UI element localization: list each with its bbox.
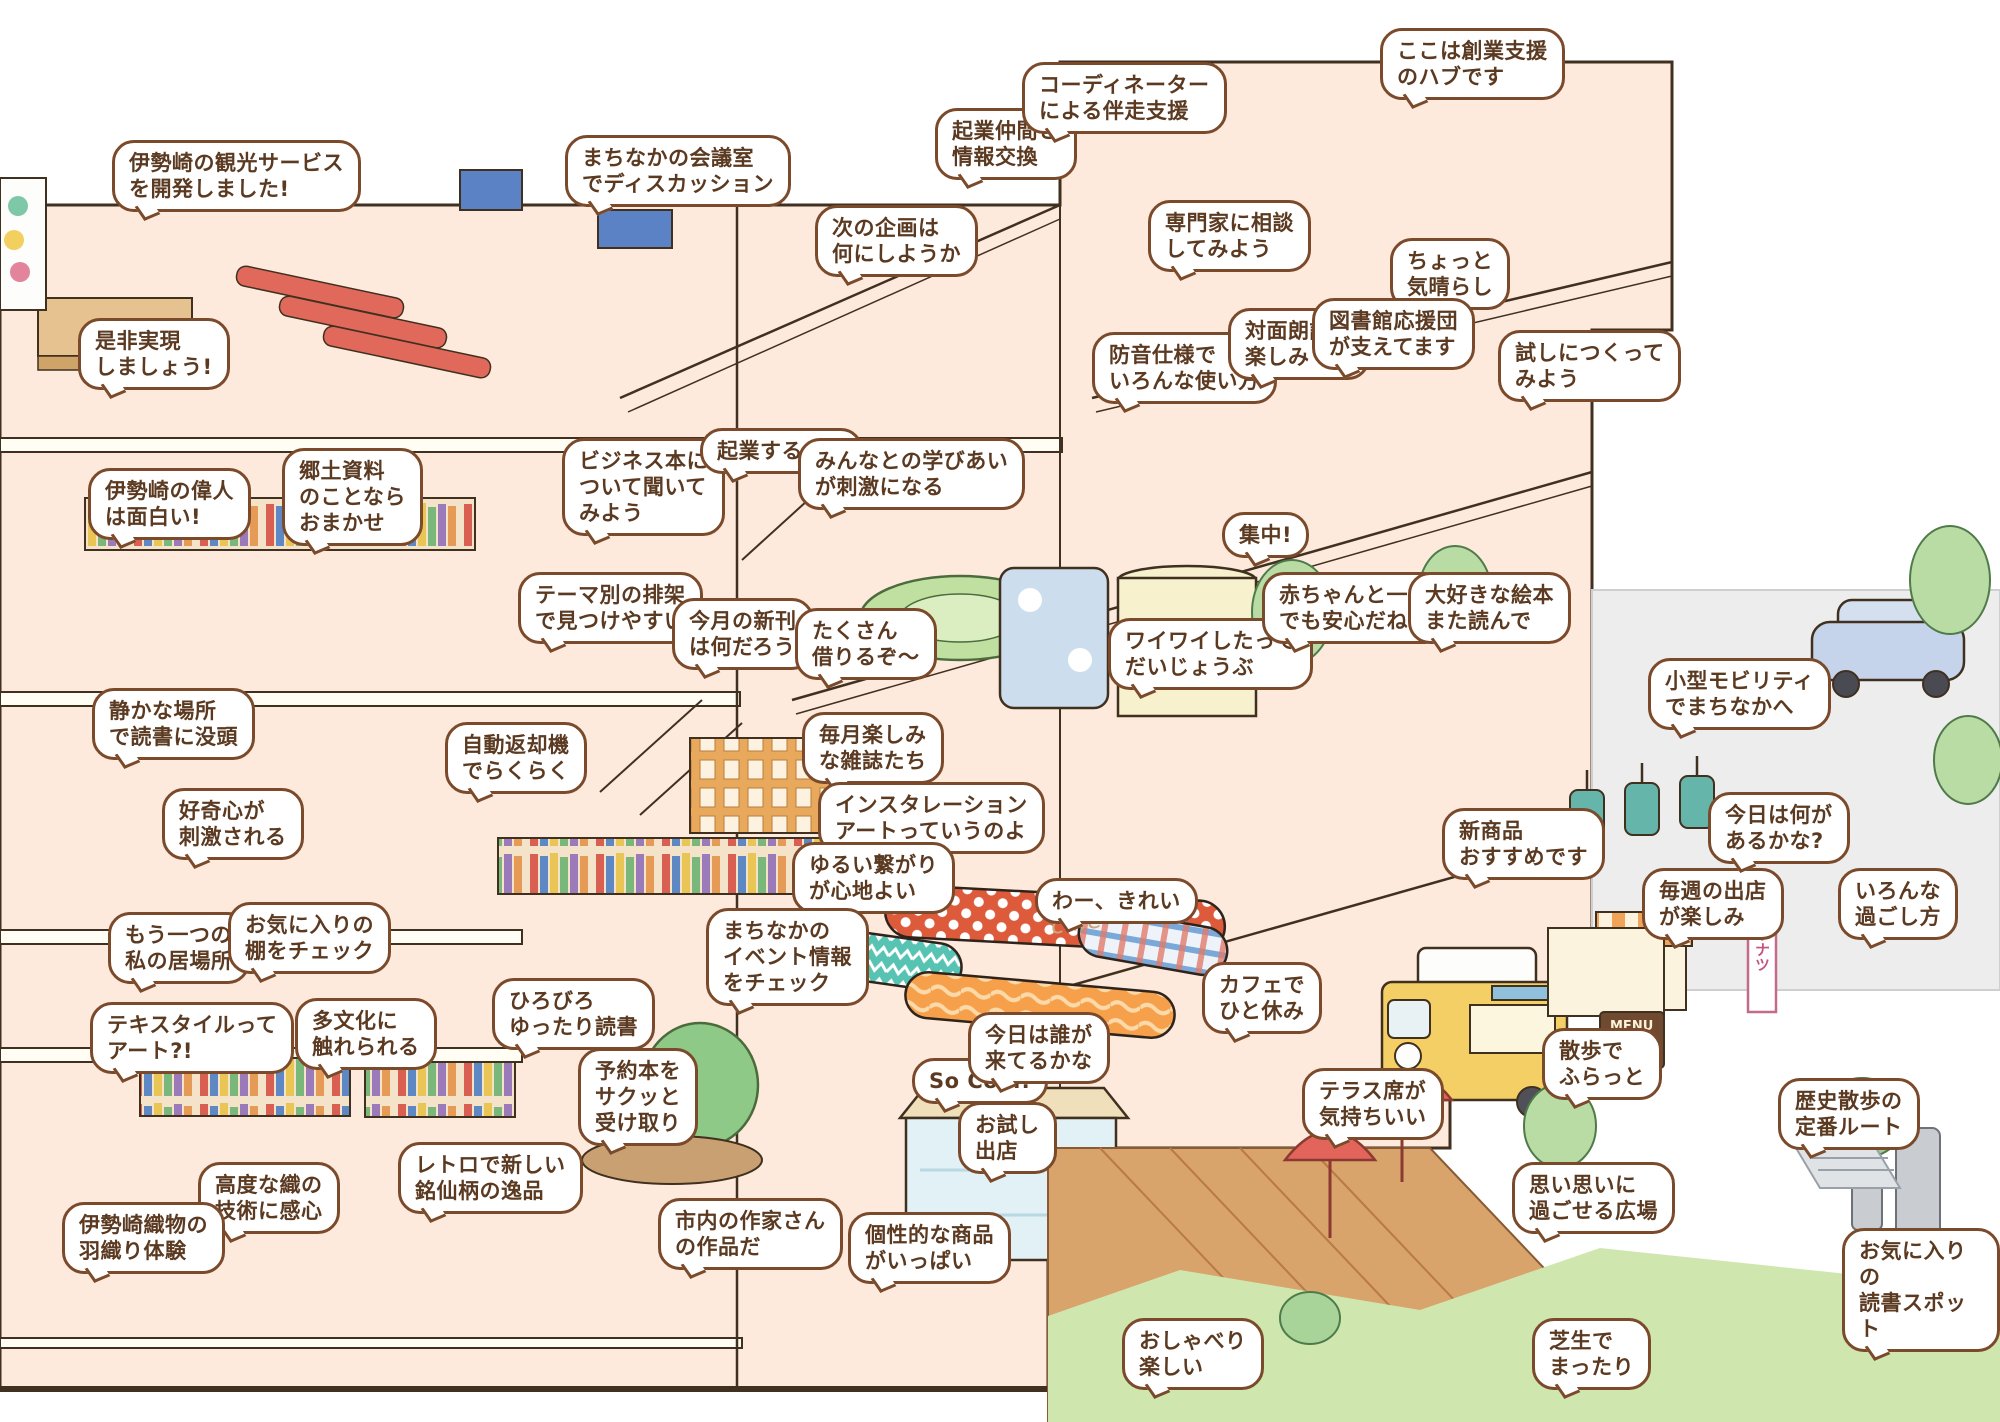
speech-bubble: 歴史散歩の 定番ルート (1778, 1078, 1920, 1150)
speech-bubble: 是非実現 しましょう! (78, 318, 230, 390)
speech-bubble: 自動返却機 でらくらく (445, 722, 587, 794)
speech-bubble: わー、きれい (1035, 878, 1198, 924)
speech-bubble: 多文化に 触れられる (295, 998, 437, 1070)
speech-bubble: 小型モビリティ でまちなかへ (1648, 658, 1831, 730)
speech-bubble: 今日は誰が 来てるかな (968, 1012, 1110, 1084)
speech-bubble: ここは創業支援 のハブです (1380, 28, 1565, 100)
speech-bubble: 芝生で まったり (1532, 1318, 1651, 1390)
speech-bubble: お気に入りの 読書スポット (1842, 1228, 2000, 1352)
speech-bubble: 今月の新刊 は何だろう (672, 598, 814, 670)
speech-bubble: テキスタイルって アート?! (90, 1002, 294, 1074)
speech-bubble: ひろびろ ゆったり読書 (492, 978, 655, 1050)
speech-bubble: ゆるい繋がり が心地よい (792, 842, 955, 914)
speech-bubble: 大好きな絵本 また読んで (1408, 572, 1571, 644)
speech-bubble: テラス席が 気持ちいい (1302, 1068, 1444, 1140)
speech-bubble: 郷土資料 のことなら おまかせ (282, 448, 423, 546)
speech-bubble: 次の企画は 何にしようか (815, 205, 978, 277)
speech-bubble: おしゃべり 楽しい (1122, 1318, 1264, 1390)
speech-bubble: 毎月楽しみ な雑誌たち (802, 712, 944, 784)
speech-bubble: 毎週の出店 が楽しみ (1642, 868, 1784, 940)
speech-bubble: 試しにつくって みよう (1498, 330, 1681, 402)
speech-bubble: 今日は何が あるかな? (1708, 792, 1850, 864)
speech-bubble: コーディネーター による伴走支援 (1022, 62, 1227, 134)
speech-bubble: まちなかの会議室 でディスカッション (565, 135, 791, 207)
speech-bubble: みんなとの学びあい が刺激になる (798, 438, 1025, 510)
speech-bubble: 思い思いに 過ごせる広場 (1512, 1162, 1675, 1234)
speech-bubble: たくさん 借りるぞ〜 (795, 608, 937, 680)
speech-bubble: まちなかの イベント情報 をチェック (706, 908, 869, 1006)
speech-bubble: 好奇心が 刺激される (162, 788, 304, 860)
speech-bubble: 伊勢崎の観光サービス を開発しました! (112, 140, 361, 212)
speech-bubble: 集中! (1222, 512, 1309, 558)
speech-bubble: 図書館応援団 が支えてます (1312, 298, 1475, 370)
speech-bubble: お試し 出店 (958, 1102, 1057, 1174)
speech-bubble: 予約本を サクッと 受け取り (578, 1048, 698, 1146)
speech-bubble: 散歩で ふらっと (1542, 1028, 1662, 1100)
speech-bubble: レトロで新しい 銘仙柄の逸品 (398, 1142, 583, 1214)
speech-bubble: 個性的な商品 がいっぱい (848, 1212, 1011, 1284)
poster-board (0, 178, 46, 310)
speech-bubble: お気に入りの 棚をチェック (228, 902, 391, 974)
speech-bubble: 伊勢崎織物の 羽織り体験 (62, 1202, 225, 1274)
speech-bubble: 伊勢崎の偉人 は面白い! (88, 468, 251, 540)
speech-bubble: 市内の作家さん の作品だ (658, 1198, 843, 1270)
speech-bubble: いろんな 過ごし方 (1838, 868, 1958, 940)
speech-bubble: 静かな場所 で読書に没頭 (92, 688, 255, 760)
speech-bubble: 新商品 おすすめです (1442, 808, 1605, 880)
speech-bubble: 専門家に相談 してみよう (1148, 200, 1311, 272)
speech-bubble: カフェで ひと休み (1202, 962, 1322, 1034)
